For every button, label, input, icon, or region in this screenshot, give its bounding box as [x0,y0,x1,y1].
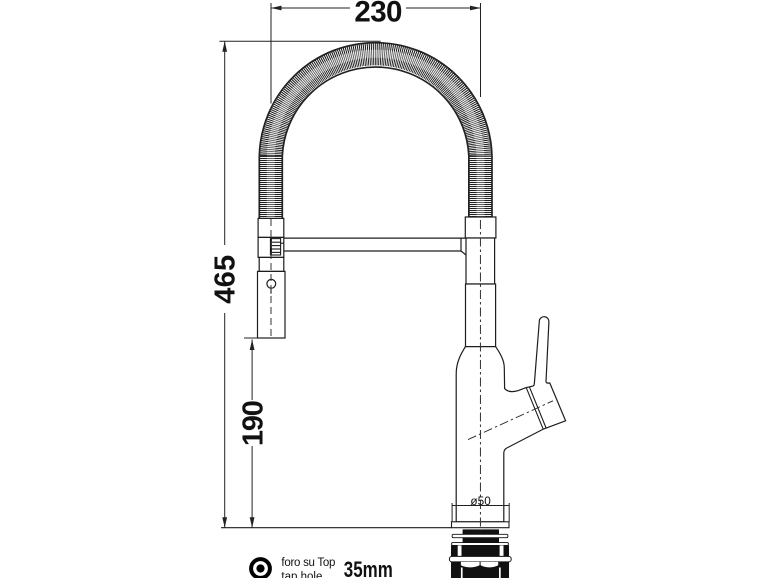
svg-text:190: 190 [238,400,270,446]
svg-text:465: 465 [209,255,241,304]
svg-text:35mm: 35mm [344,558,393,578]
svg-text:ø50: ø50 [470,494,491,508]
svg-text:230: 230 [354,0,402,28]
svg-text:tap hole: tap hole [281,571,322,578]
svg-text:foro su Top: foro su Top [281,557,335,569]
